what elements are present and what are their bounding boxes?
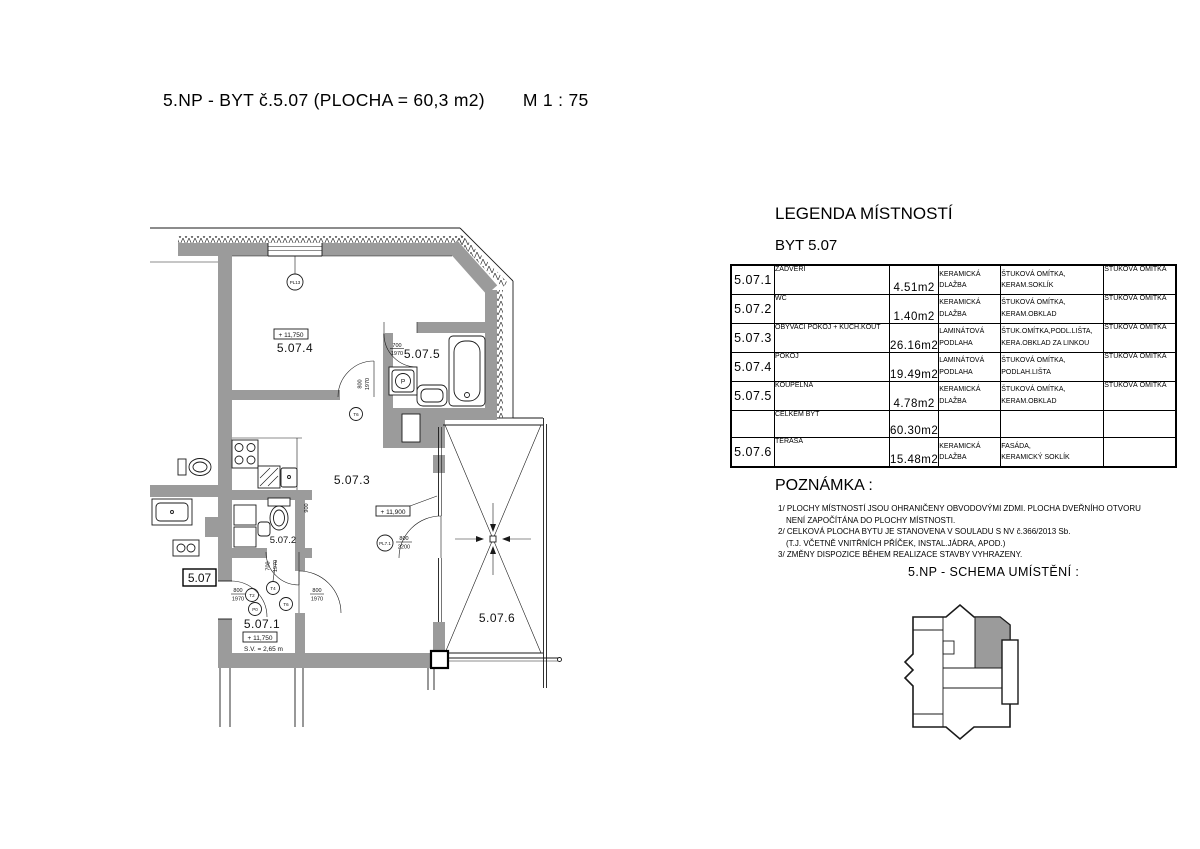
legend-heading: LEGENDA MÍSTNOSTÍ: [775, 204, 953, 224]
room-name: WC: [775, 294, 890, 323]
room-label-zadveri: 5.07.1: [244, 617, 280, 631]
room-id: 5.07.1: [731, 265, 775, 294]
washer-tag: P: [401, 379, 405, 386]
door-size: 800: [399, 536, 408, 542]
room-ceiling: [1104, 410, 1177, 437]
entry-hall: 800 1970 800 1970 T4 T2 P0 T6 5.07.1 + 1…: [218, 560, 341, 653]
dim-900: 900: [304, 503, 310, 512]
terrace-door-tag: PL7.1: [379, 541, 391, 546]
notes-heading: POZNÁMKA :: [775, 477, 873, 495]
svg-text:5.07: 5.07: [188, 571, 212, 585]
room-name: ZÁDVEŘÍ: [775, 265, 890, 294]
door-size: 800: [358, 379, 364, 388]
fixture-tag-t6: T6: [353, 412, 359, 417]
neighbour-fixtures: [152, 459, 211, 557]
table-row: 5.07.6 TERASA 15.48m2 KERAMICKÁ DLAŽBA F…: [731, 437, 1176, 467]
note-line: NENÍ ZAPOČÍTÁNA DO PLOCHY MÍSTNOSTI.: [778, 515, 1141, 527]
note-line: 3/ ZMĚNY DISPOZICE BĚHEM REALIZACE STAVB…: [778, 549, 1141, 561]
room-walls: ŠTUKOVÁ OMÍTKA, PODLAH.LIŠTA: [1001, 352, 1104, 381]
legend-subheading: BYT 5.07: [775, 237, 837, 254]
drawing-scale: M 1 : 75: [523, 90, 589, 110]
room-ceiling: [1104, 437, 1177, 467]
level-label: + 11,900: [380, 509, 405, 516]
room-ceiling: ŠTUKOVÁ OMÍTKA: [1104, 294, 1177, 323]
door-size: 800: [233, 588, 242, 594]
room-ceiling: ŠTUKOVÁ OMÍTKA: [1104, 323, 1177, 352]
room-area: 4.78m2: [890, 381, 939, 410]
room-floor: KERAMICKÁ DLAŽBA: [939, 381, 1001, 410]
notes-block: 1/ PLOCHY MÍSTNOSTÍ JSOU OHRANIČENY OBVO…: [778, 503, 1141, 561]
table-row: 5.07.1 ZÁDVEŘÍ 4.51m2 KERAMICKÁ DLAŽBA Š…: [731, 265, 1176, 294]
door-size: 700: [266, 561, 272, 570]
legend-table: 5.07.1 ZÁDVEŘÍ 4.51m2 KERAMICKÁ DLAŽBA Š…: [730, 264, 1177, 468]
room-id: 5.07.4: [731, 352, 775, 381]
room-walls: ŠTUKOVÁ OMÍTKA, KERAM.OBKLAD: [1001, 381, 1104, 410]
ceiling-height-label: S.V. = 2,65 m: [244, 646, 283, 653]
room-area: 26.16m2: [890, 323, 939, 352]
page-title: 5.NP - BYT č.5.07 (PLOCHA = 60,3 m2)M 1 …: [163, 90, 589, 111]
door-size: 1970: [311, 597, 323, 603]
room-area: 1.40m2: [890, 294, 939, 323]
fixture-tag-p0: P0: [252, 607, 258, 612]
door-size: 1970: [365, 378, 371, 390]
room-name: OBÝVACÍ POKOJ + KUCH.KOUT: [775, 323, 890, 352]
room-walls: ŠTUKOVÁ OMÍTKA, KERAM.SOKLÍK: [1001, 265, 1104, 294]
room-name: KOUPELNA: [775, 381, 890, 410]
door-size: 800: [312, 588, 321, 594]
room-label-wc: 5.07.2: [270, 535, 296, 546]
room-id: 5.07.3: [731, 323, 775, 352]
living-room: 5.07.3 + 11,900 PL7.1 800 2200: [334, 473, 437, 551]
room-area: 60.30m2: [890, 410, 939, 437]
room-area: 4.51m2: [890, 265, 939, 294]
room-label-terasa: 5.07.6: [479, 611, 515, 625]
room-ceiling: ŠTUKOVÁ OMÍTKA: [1104, 381, 1177, 410]
room-id: 5.07.6: [731, 437, 775, 467]
window-pl13: PL13: [268, 243, 322, 290]
table-row: 5.07.2 WC 1.40m2 KERAMICKÁ DLAŽBA ŠTUKOV…: [731, 294, 1176, 323]
door-size: 1970: [232, 597, 244, 603]
kitchen: [232, 438, 302, 490]
room-ceiling: ŠTUKOVÁ OMÍTKA: [1104, 265, 1177, 294]
room-name: TERASA: [775, 437, 890, 467]
table-row: 5.07.3 OBÝVACÍ POKOJ + KUCH.KOUT 26.16m2…: [731, 323, 1176, 352]
room-label-pokoj: 5.07.4: [277, 341, 313, 355]
level-label: + 11,750: [278, 332, 303, 339]
door-size: 1970: [391, 351, 403, 357]
room-walls: ŠTUKOVÁ OMÍTKA, KERAM.OBKLAD: [1001, 294, 1104, 323]
room-id: 5.07.2: [731, 294, 775, 323]
schema-heading: 5.NP - SCHEMA UMÍSTĚNÍ :: [908, 565, 1079, 579]
drawing-title: 5.NP - BYT č.5.07 (PLOCHA = 60,3 m2): [163, 90, 485, 110]
room-floor: KERAMICKÁ DLAŽBA: [939, 265, 1001, 294]
room-walls: FASÁDA, KERAMICKÝ SOKLÍK: [1001, 437, 1104, 467]
room-ceiling: ŠTUKOVÁ OMÍTKA: [1104, 352, 1177, 381]
table-row: 5.07.4 POKOJ 19.49m2 LAMINÁTOVÁ PODLAHA …: [731, 352, 1176, 381]
room-id: [731, 410, 775, 437]
note-line: (T.J. VČETNĚ VNITŘNÍCH PŘÍČEK, INSTAL.JÁ…: [778, 538, 1141, 550]
room-area: 19.49m2: [890, 352, 939, 381]
fixture-tag-t2: T2: [249, 593, 255, 598]
room-pokoj: + 11,750 5.07.4 800 1970 T6: [274, 329, 374, 421]
room-floor: KERAMICKÁ DLAŽBA: [939, 294, 1001, 323]
note-line: 1/ PLOCHY MÍSTNOSTÍ JSOU OHRANIČENY OBVO…: [778, 503, 1141, 515]
table-row-total: CELKEM BYT 60.30m2: [731, 410, 1176, 437]
room-walls: ŠTUK.OMÍTKA,PODL.LIŠTA, KERA.OBKLAD ZA L…: [1001, 323, 1104, 352]
fixture-tag-t6: T6: [283, 602, 289, 607]
table-row: 5.07.5 KOUPELNA 4.78m2 KERAMICKÁ DLAŽBA …: [731, 381, 1176, 410]
note-line: 2/ CELKOVÁ PLOCHA BYTU JE STANOVENA V SO…: [778, 526, 1141, 538]
room-id: 5.07.5: [731, 381, 775, 410]
room-label-obyvaci: 5.07.3: [334, 473, 370, 487]
door-size: 700: [392, 343, 401, 349]
fixture-tag-t4: T4: [270, 586, 276, 591]
door-size: 2200: [398, 545, 410, 551]
room-name: CELKEM BYT: [775, 410, 890, 437]
room-floor: LAMINÁTOVÁ PODLAHA: [939, 323, 1001, 352]
room-area: 15.48m2: [890, 437, 939, 467]
room-walls: [1001, 410, 1104, 437]
room-floor: LAMINÁTOVÁ PODLAHA: [939, 352, 1001, 381]
walls: [150, 243, 497, 668]
room-floor: [939, 410, 1001, 437]
window-tag: PL13: [290, 280, 301, 285]
room-floor: KERAMICKÁ DLAŽBA: [939, 437, 1001, 467]
apartment-tag: 5.07: [183, 569, 216, 586]
room-label-koupelna: 5.07.5: [404, 347, 440, 361]
room-name: POKOJ: [775, 352, 890, 381]
terrace: 5.07.6: [443, 425, 543, 653]
location-schema: [905, 605, 1018, 739]
level-label: + 11,750: [247, 635, 272, 642]
